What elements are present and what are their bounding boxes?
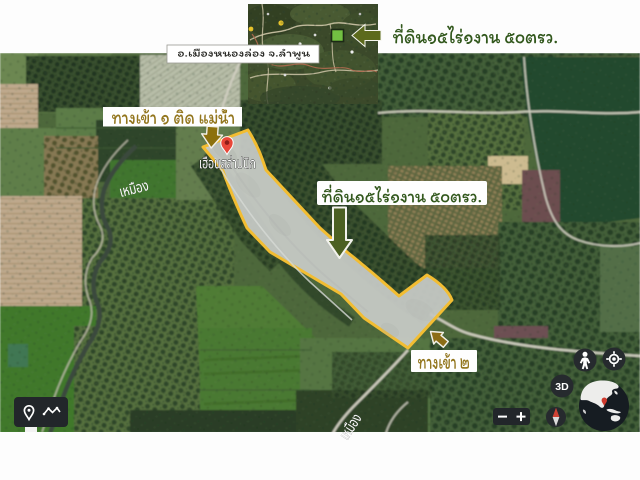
svg-text:3D: 3D bbox=[555, 381, 569, 393]
